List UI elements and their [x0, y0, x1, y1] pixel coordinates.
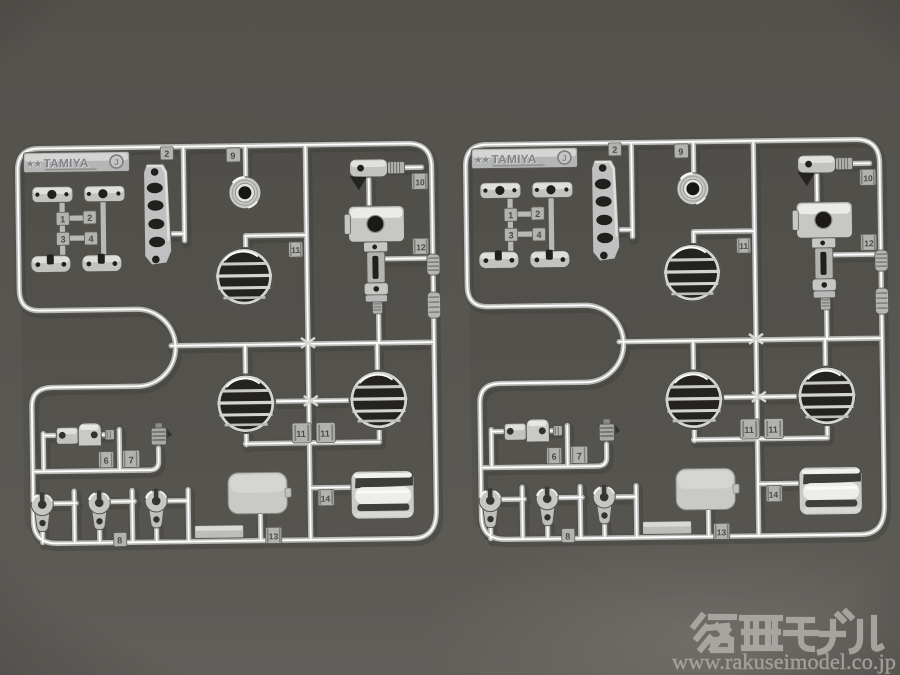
svg-text:www.rakuseimodel.co.jp: www.rakuseimodel.co.jp: [672, 649, 896, 674]
